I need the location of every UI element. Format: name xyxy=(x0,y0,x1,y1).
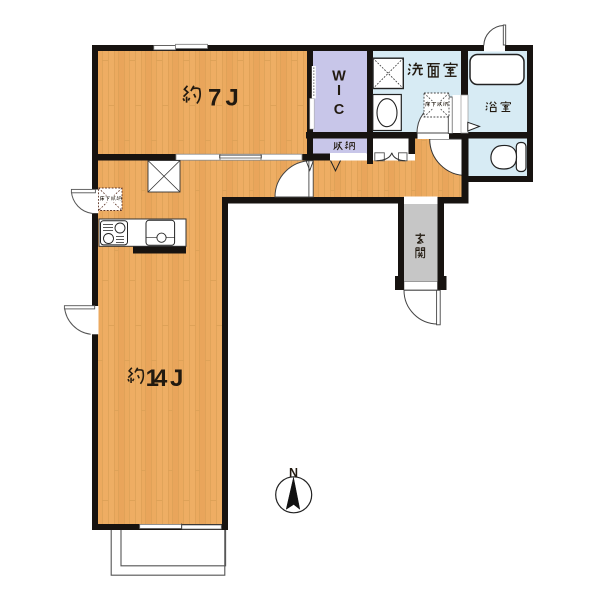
svg-text:N: N xyxy=(289,466,298,480)
svg-text:I: I xyxy=(337,83,341,99)
svg-text:14J: 14J xyxy=(146,365,184,392)
svg-text:C: C xyxy=(334,102,345,118)
svg-text:7J: 7J xyxy=(208,84,243,111)
